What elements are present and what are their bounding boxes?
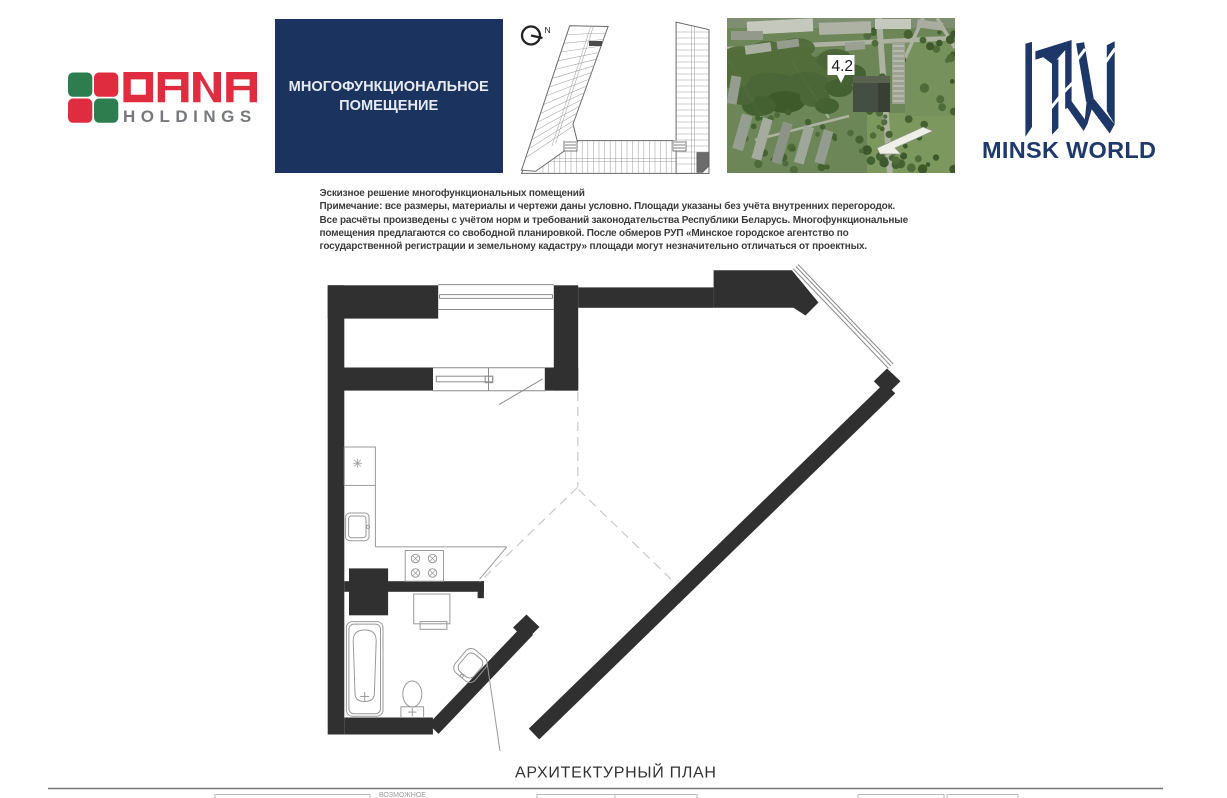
svg-text:АРХИТЕКТУРНЫЙ ПЛАН: АРХИТЕКТУРНЫЙ ПЛАН <box>515 763 717 782</box>
svg-text:ВОЗМОЖНОЕ: ВОЗМОЖНОЕ <box>379 792 426 798</box>
